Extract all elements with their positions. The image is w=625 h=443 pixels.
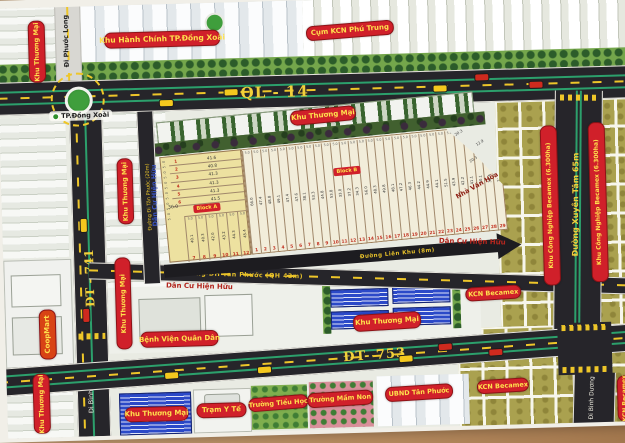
car xyxy=(398,354,414,363)
badge-khu-thuong-mai-midleft: Khu Thương Mại xyxy=(116,158,134,224)
badge-coopmart: CoopMart xyxy=(39,309,57,359)
road-label-lien-khu: Đường Liên Khu (8m) xyxy=(360,247,435,260)
text-dan-cu-hien-huu-left: Dân Cư Hiện Hữu xyxy=(150,164,160,226)
map-sheet: Đi Phước Long Khu Thương Mại Khu Hành Ch… xyxy=(0,0,625,443)
intersection-753-xt xyxy=(557,322,612,375)
text-dan-cu-hien-huu-right: Dân Cư Hiện Hữu xyxy=(439,237,506,247)
car xyxy=(257,365,273,374)
badge-kcn-becamex-edge: KCN Becamex xyxy=(617,375,625,421)
badge-khu-thuong-mai-hospital: Khu Thương Mại xyxy=(114,257,133,349)
corner-dim-2: 12.9 xyxy=(475,138,485,147)
road-label-dt753: ĐT- 753 xyxy=(343,346,407,365)
car xyxy=(223,88,238,96)
area-left-residential-1 xyxy=(0,117,69,259)
car xyxy=(82,308,90,323)
block-a-rows: 141.6240.8341.3441.3541.3641.5 xyxy=(168,151,244,207)
corner-dim-1: 20.3 xyxy=(454,128,464,137)
road-di-binh-duong-right: Đi Bình Dương xyxy=(573,372,616,425)
roundabout-label: TP.Đồng Xoài xyxy=(49,110,112,122)
car xyxy=(438,342,454,351)
badge-benh-vien: Bệnh Viện Quân Dân xyxy=(140,330,218,348)
road-di-phuoc-long: Đi Phước Long xyxy=(54,6,82,81)
roundabout-icon xyxy=(52,113,59,120)
roundabout-label-text: TP.Đồng Xoài xyxy=(61,111,109,120)
map-canvas: Đi Phước Long Khu Thương Mại Khu Hành Ch… xyxy=(0,0,625,439)
car xyxy=(80,218,88,233)
car xyxy=(488,348,504,357)
car xyxy=(159,99,174,107)
block-a-cols: 5.040.175.040.385.042.095.043.2105.044.3… xyxy=(184,210,251,262)
car xyxy=(528,81,543,89)
text-dan-cu-hien-huu-mid: Dân Cư Hiện Hữu xyxy=(166,281,233,291)
car xyxy=(474,73,489,81)
badge-khu-thuong-mai-bottomleft: Khu Thương Mại xyxy=(32,373,51,433)
badge-block-a: Block A xyxy=(193,203,221,214)
badge-khu-thuong-mai-topleft: Khu Thương Mại xyxy=(28,20,47,82)
block-a-bottom-dim: 36.0 xyxy=(168,205,178,211)
road-label-xuyen-tam: Đường Xuyên Tâm 65m xyxy=(571,153,581,257)
car xyxy=(432,84,447,92)
badge-tram-y-te: Trạm Y Tế xyxy=(196,402,246,418)
road-label-ql14: QL - 14 xyxy=(240,82,309,102)
car xyxy=(164,371,180,380)
block-a: 5.0 5.0 5.0 5.0 5.0 5.0 141.6240.8341.34… xyxy=(159,149,251,262)
badge-khu-hanh-chinh: Khu Hành Chính TP.Đồng Xoài xyxy=(104,30,220,49)
road-label-di-phuoc-long: Đi Phước Long xyxy=(61,15,70,68)
road-label-di-binh-duong-right: Đi Bình Dương xyxy=(588,376,596,419)
